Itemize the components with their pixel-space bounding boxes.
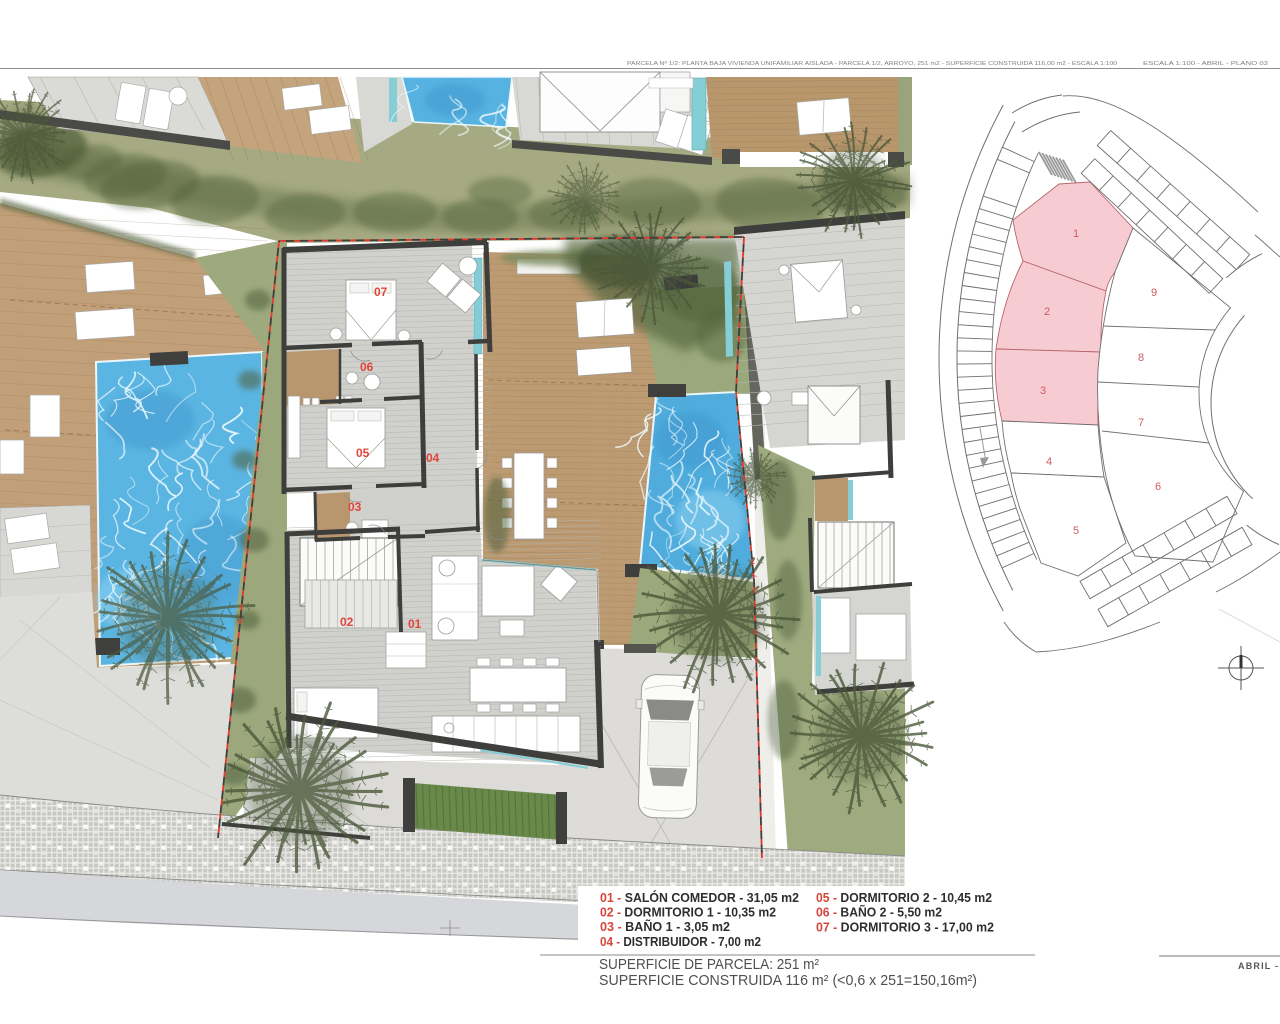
svg-text:05: 05 xyxy=(356,446,370,460)
svg-text:03 - BAÑO 1 - 3,05 m2: 03 - BAÑO 1 - 3,05 m2 xyxy=(600,919,730,934)
svg-text:SUPERFICIE DE PARCELA: 251 m²: SUPERFICIE DE PARCELA: 251 m² xyxy=(599,957,819,973)
svg-text:07: 07 xyxy=(374,285,388,299)
svg-text:06: 06 xyxy=(360,360,374,374)
svg-text:07 - DORMITORIO 3 - 17,00 m2: 07 - DORMITORIO 3 - 17,00 m2 xyxy=(816,919,994,934)
svg-text:1: 1 xyxy=(1073,228,1079,240)
svg-text:01 - SALÓN COMEDOR - 31,05 m2: 01 - SALÓN COMEDOR - 31,05 m2 xyxy=(600,890,799,905)
svg-text:5: 5 xyxy=(1073,525,1079,537)
svg-text:2: 2 xyxy=(1044,306,1050,318)
svg-text:04 - DISTRIBUIDOR - 7,00 m2: 04 - DISTRIBUIDOR - 7,00 m2 xyxy=(600,934,761,949)
svg-text:9: 9 xyxy=(1151,287,1157,299)
svg-text:8: 8 xyxy=(1138,352,1144,364)
svg-text:6: 6 xyxy=(1155,481,1161,493)
svg-text:04: 04 xyxy=(426,451,440,465)
svg-text:4: 4 xyxy=(1046,456,1052,468)
svg-text:ESCALA 1:100 - ABRIL - PLANO 0: ESCALA 1:100 - ABRIL - PLANO 03 xyxy=(1143,61,1268,67)
svg-text:PARCELA Nº 1/2: PLANTA BAJA VI: PARCELA Nº 1/2: PLANTA BAJA VIVIENDA UNI… xyxy=(627,60,1117,67)
svg-text:02 - DORMITORIO 1 - 10,35 m2: 02 - DORMITORIO 1 - 10,35 m2 xyxy=(600,905,776,920)
svg-text:7: 7 xyxy=(1138,417,1144,429)
svg-text:02: 02 xyxy=(340,615,354,629)
svg-text:05 - DORMITORIO 2 - 10,45 m2: 05 - DORMITORIO 2 - 10,45 m2 xyxy=(816,890,992,905)
svg-text:SUPERFICIE CONSTRUIDA 116 m² (: SUPERFICIE CONSTRUIDA 116 m² (<0,6 x 251… xyxy=(599,973,977,989)
svg-text:ABRIL -: ABRIL - xyxy=(1238,961,1279,971)
svg-text:06 - BAÑO 2 - 5,50 m2: 06 - BAÑO 2 - 5,50 m2 xyxy=(816,905,942,920)
svg-text:3: 3 xyxy=(1040,385,1046,397)
svg-text:03: 03 xyxy=(348,500,362,514)
svg-text:01: 01 xyxy=(408,617,422,631)
